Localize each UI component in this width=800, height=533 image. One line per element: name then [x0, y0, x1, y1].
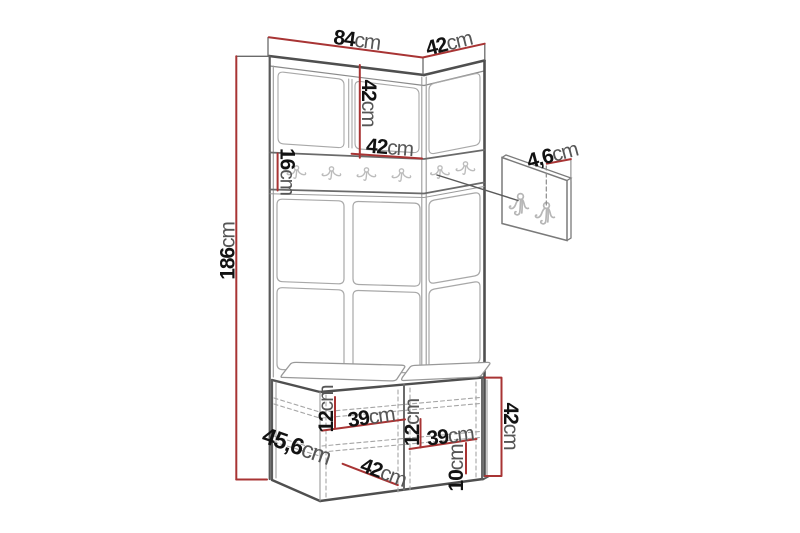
- svg-text:12cm: 12cm: [401, 398, 424, 446]
- svg-text:12cm: 12cm: [315, 385, 338, 433]
- svg-text:42cm: 42cm: [365, 135, 414, 162]
- svg-text:42cm: 42cm: [499, 403, 522, 451]
- svg-text:16cm: 16cm: [276, 148, 299, 196]
- svg-text:10cm: 10cm: [445, 444, 468, 492]
- svg-text:186cm: 186cm: [217, 222, 240, 280]
- svg-text:42cm: 42cm: [357, 80, 380, 128]
